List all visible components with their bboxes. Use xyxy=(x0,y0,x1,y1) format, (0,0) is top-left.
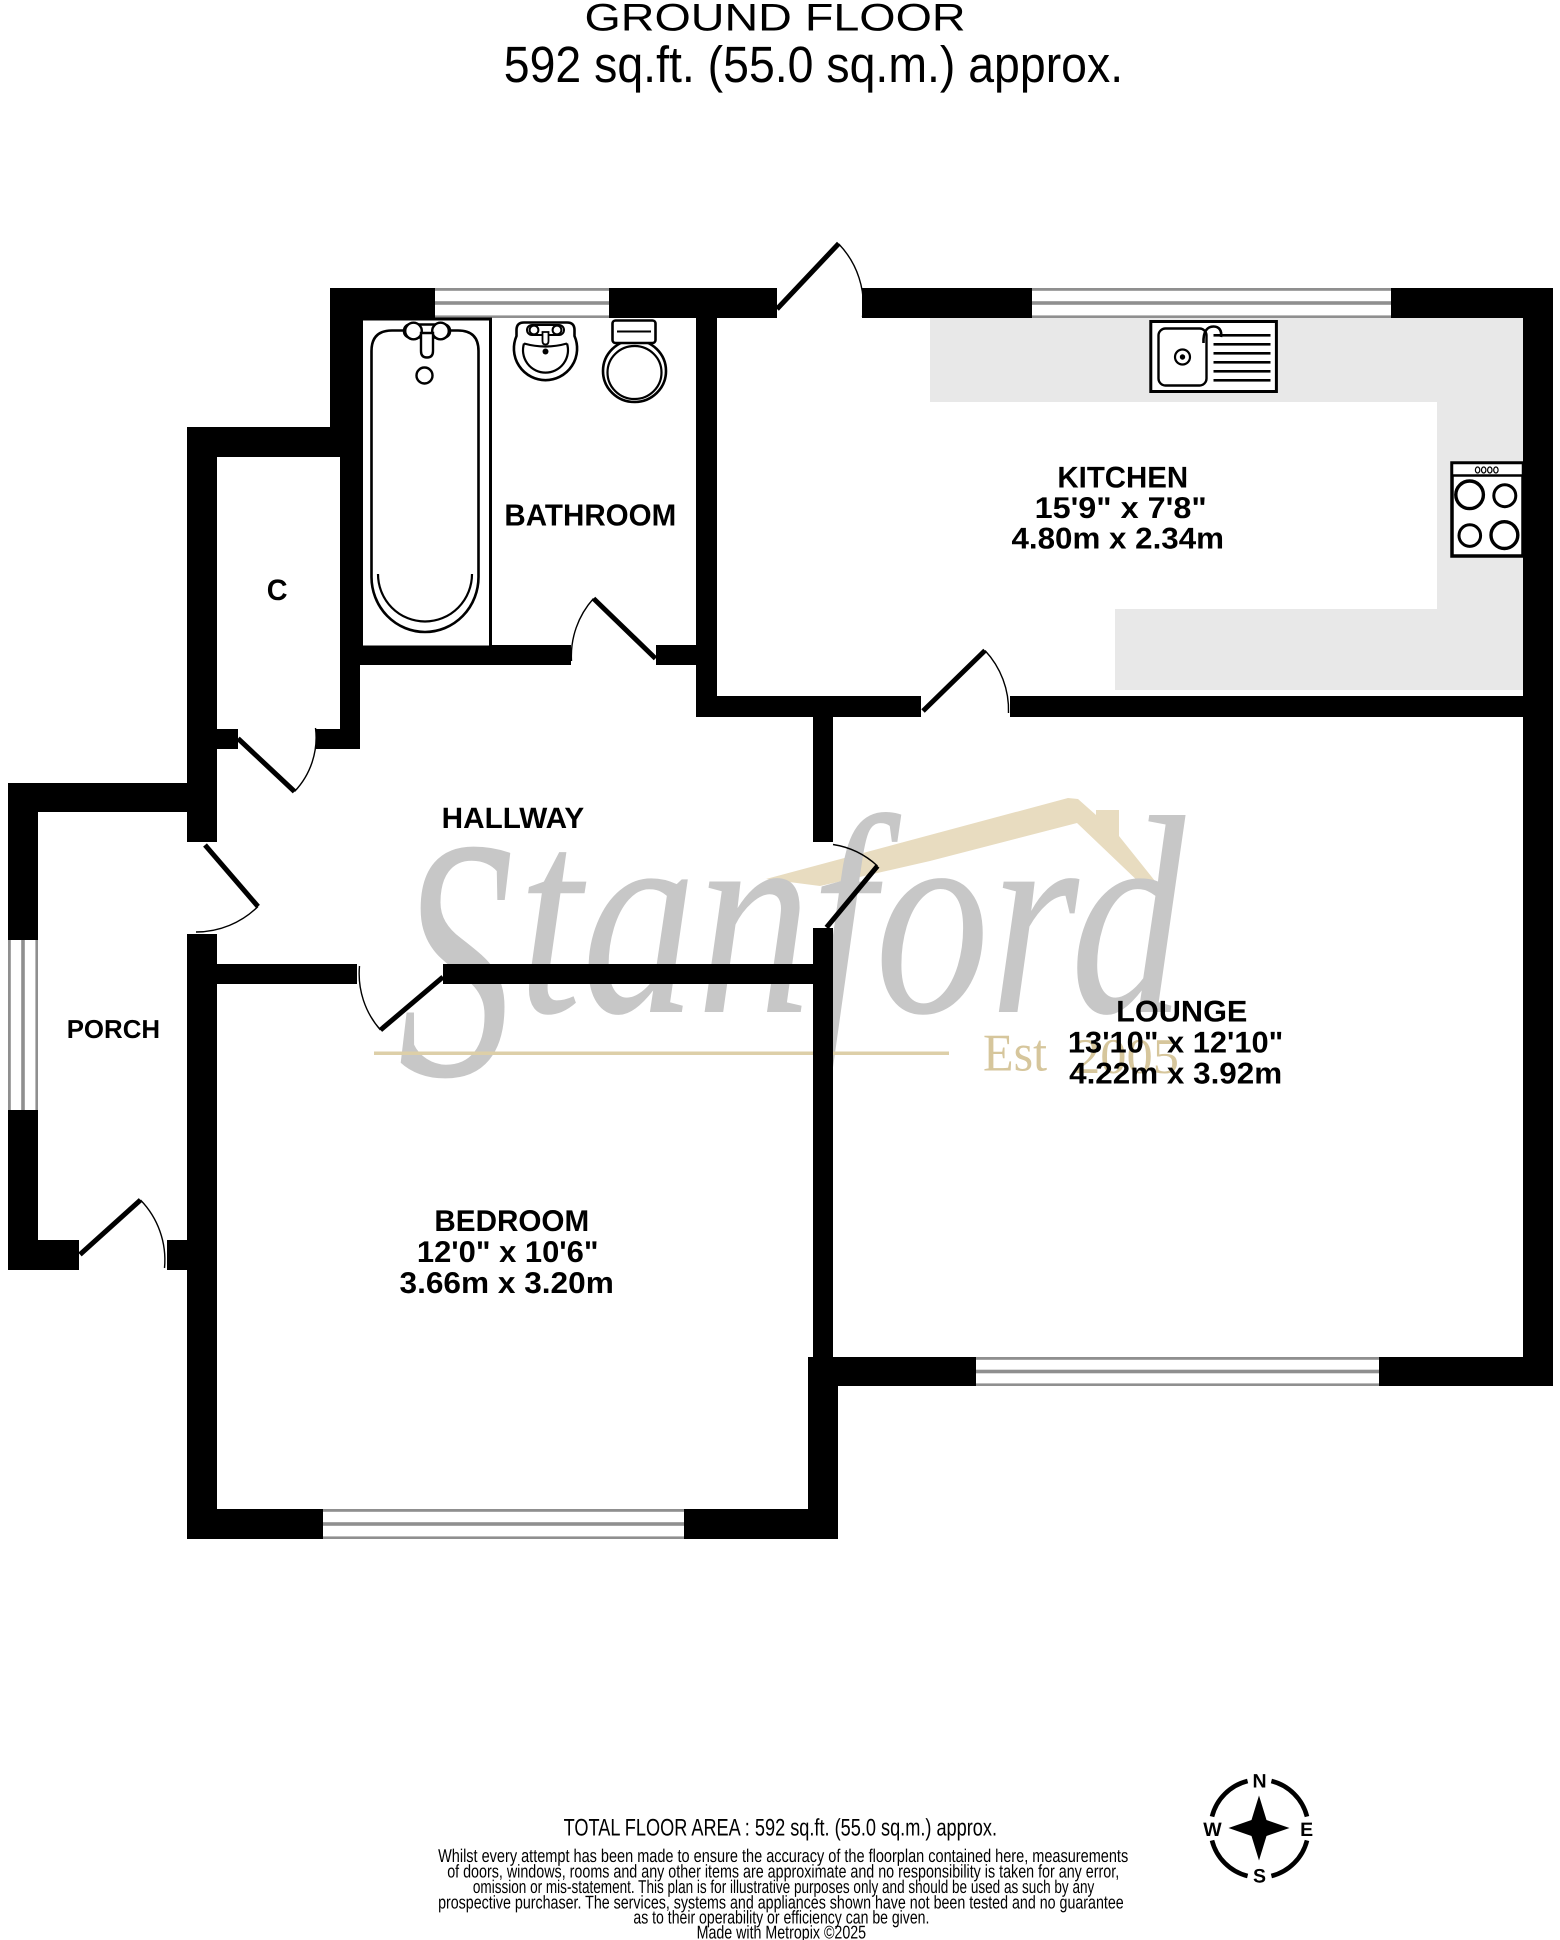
svg-text:4.80m x 2.34m: 4.80m x 2.34m xyxy=(1012,523,1225,556)
svg-text:Made with Metropix ©2025: Made with Metropix ©2025 xyxy=(697,1922,867,1940)
svg-text:15'9" x 7'8": 15'9" x 7'8" xyxy=(1035,492,1207,525)
svg-text:E: E xyxy=(1300,1819,1313,1841)
svg-text:KITCHEN: KITCHEN xyxy=(1057,461,1188,494)
svg-text:W: W xyxy=(1203,1819,1222,1841)
svg-text:13'10" x 12'10": 13'10" x 12'10" xyxy=(1068,1027,1283,1060)
svg-text:3.66m x 3.20m: 3.66m x 3.20m xyxy=(400,1267,614,1300)
svg-text:PORCH: PORCH xyxy=(67,1014,160,1044)
svg-text:LOUNGE: LOUNGE xyxy=(1116,995,1247,1028)
svg-text:S: S xyxy=(1253,1866,1266,1888)
svg-text:592 sq.ft. (55.0 sq.m.) approx: 592 sq.ft. (55.0 sq.m.) approx. xyxy=(504,36,1123,93)
svg-text:TOTAL FLOOR AREA : 592 sq.ft.: TOTAL FLOOR AREA : 592 sq.ft. (55.0 sq.m… xyxy=(564,1815,997,1842)
svg-text:GROUND FLOOR: GROUND FLOOR xyxy=(585,0,966,40)
svg-text:Est: Est xyxy=(983,1025,1047,1083)
svg-text:4.22m x 3.92m: 4.22m x 3.92m xyxy=(1069,1058,1282,1091)
svg-text:N: N xyxy=(1252,1771,1266,1793)
svg-text:BATHROOM: BATHROOM xyxy=(504,499,676,533)
svg-text:BEDROOM: BEDROOM xyxy=(434,1205,589,1238)
svg-text:C: C xyxy=(267,574,288,607)
svg-text:12'0" x 10'6": 12'0" x 10'6" xyxy=(417,1236,599,1269)
svg-text:HALLWAY: HALLWAY xyxy=(442,802,585,835)
